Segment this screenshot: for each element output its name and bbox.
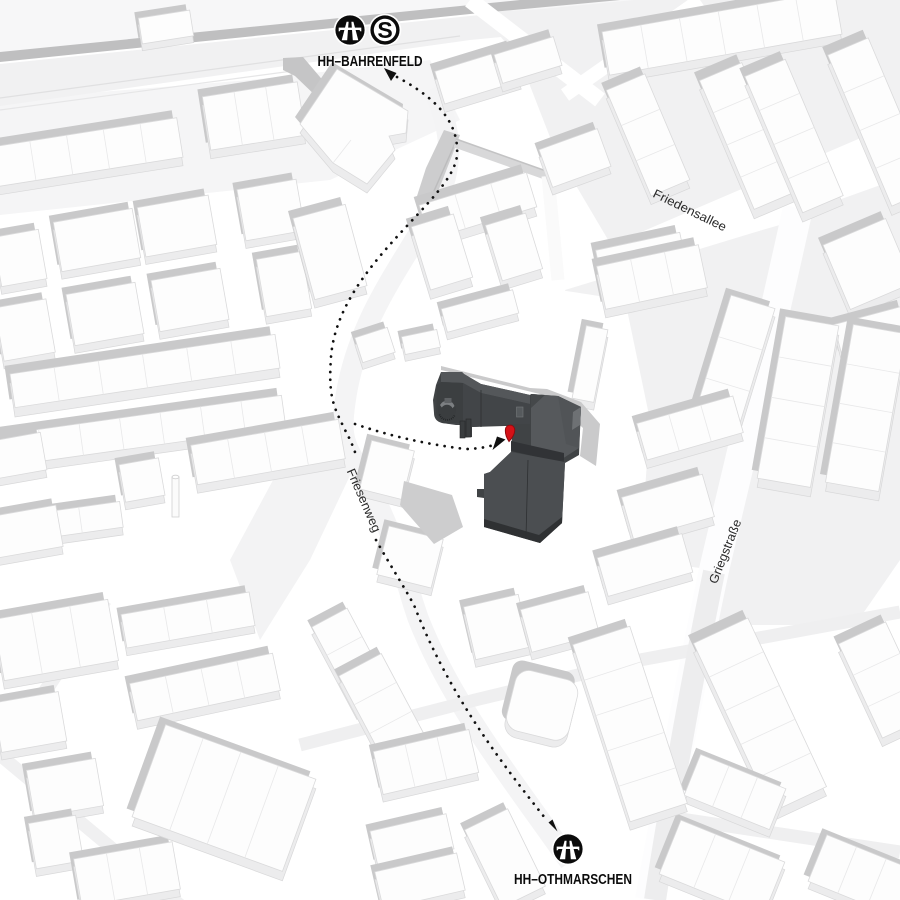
svg-text:S: S xyxy=(377,17,392,43)
svg-text:HH–BAHRENFELD: HH–BAHRENFELD xyxy=(318,54,423,70)
svg-text:HH–OTHMARSCHEN: HH–OTHMARSCHEN xyxy=(514,872,632,888)
